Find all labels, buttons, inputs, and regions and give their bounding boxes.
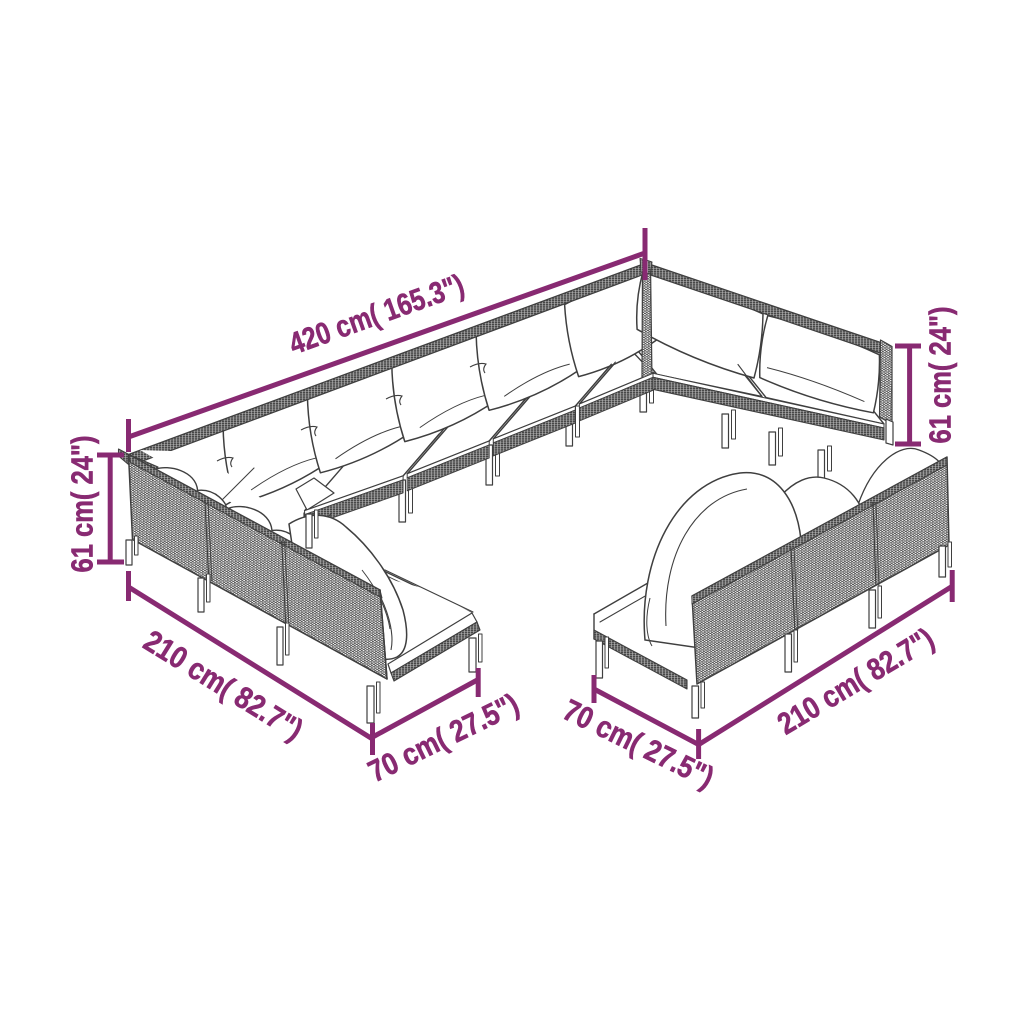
svg-text:70 cm( 27.5"): 70 cm( 27.5") bbox=[363, 687, 524, 789]
svg-text:61 cm( 24"): 61 cm( 24") bbox=[66, 436, 100, 573]
svg-text:61 cm( 24"): 61 cm( 24") bbox=[924, 307, 958, 444]
